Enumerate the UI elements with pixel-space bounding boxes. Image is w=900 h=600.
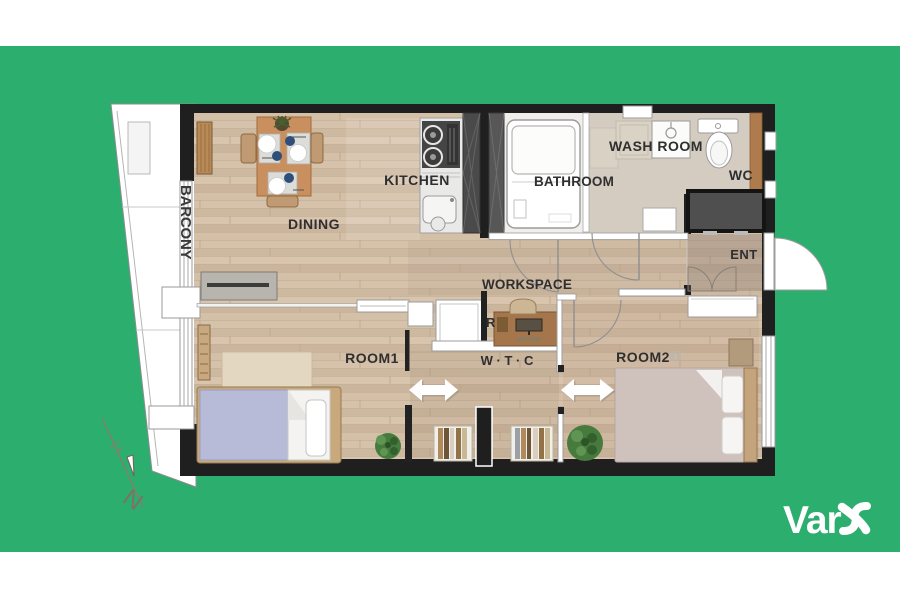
svg-text:BARCONY: BARCONY [177, 185, 194, 260]
svg-text:DINING: DINING [288, 216, 340, 232]
svg-text:W · T · C: W · T · C [481, 353, 534, 368]
svg-text:BATHROOM: BATHROOM [534, 174, 614, 189]
svg-text:ENT: ENT [730, 247, 758, 262]
svg-text:WORKSPACE: WORKSPACE [482, 277, 572, 292]
svg-text:R: R [486, 315, 496, 330]
svg-text:Var: Var [783, 499, 842, 542]
svg-text:ROOM2: ROOM2 [616, 349, 670, 365]
svg-text:ROOM1: ROOM1 [345, 350, 399, 366]
svg-text:WASH ROOM: WASH ROOM [609, 138, 703, 154]
svg-text:WC: WC [729, 167, 753, 183]
svg-text:KITCHEN: KITCHEN [384, 172, 450, 188]
